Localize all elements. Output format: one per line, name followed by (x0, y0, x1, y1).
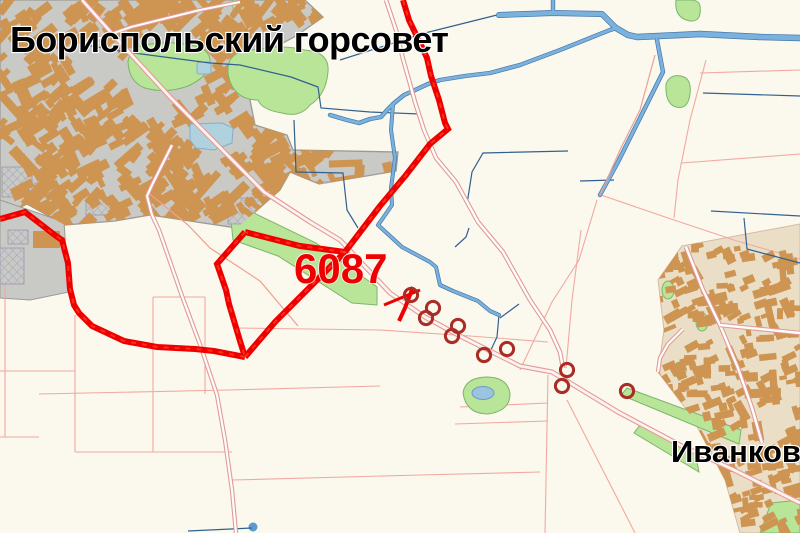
svg-text:Бориспольский горсовет: Бориспольский горсовет (10, 19, 448, 60)
svg-text:Иванково: Иванково (671, 434, 800, 469)
svg-text:6087: 6087 (294, 245, 387, 292)
